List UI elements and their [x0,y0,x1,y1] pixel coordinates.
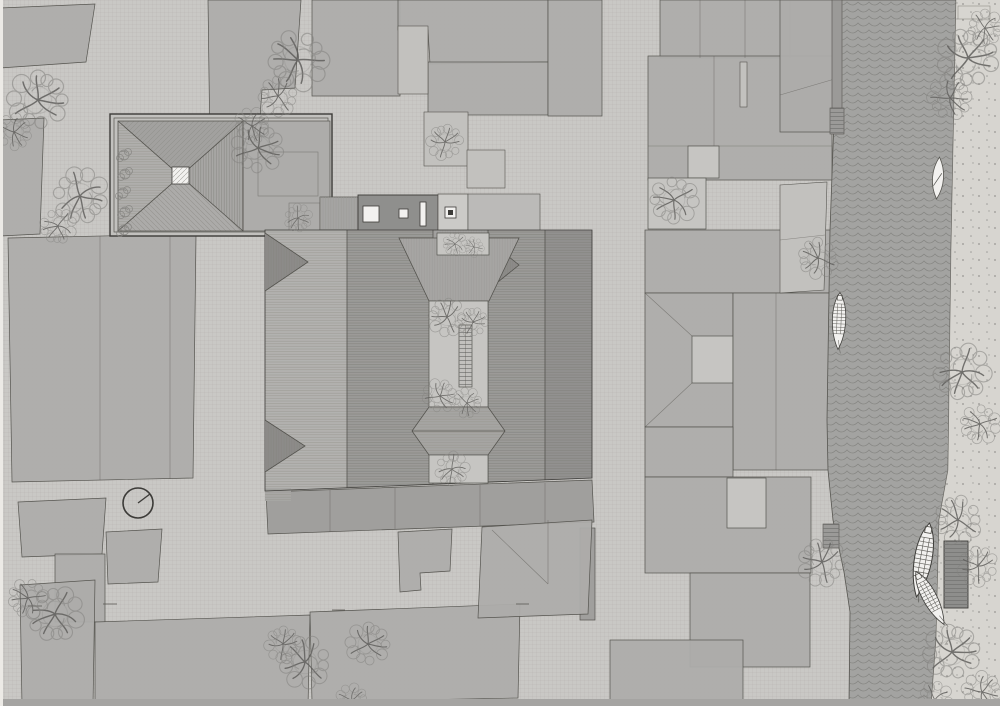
courtyard-walkway [459,325,472,387]
skylight [399,209,408,218]
skylight [420,202,426,226]
hip-roof [118,121,243,231]
roof-lantern-skylight [172,167,189,184]
site-plan-drawing [0,0,1000,706]
main-hall-complex [265,230,592,501]
skylight [363,206,379,222]
skylight-core [448,210,453,215]
annex-strip [289,194,540,234]
dock [944,541,968,608]
site-plan-canvas [0,0,1000,706]
